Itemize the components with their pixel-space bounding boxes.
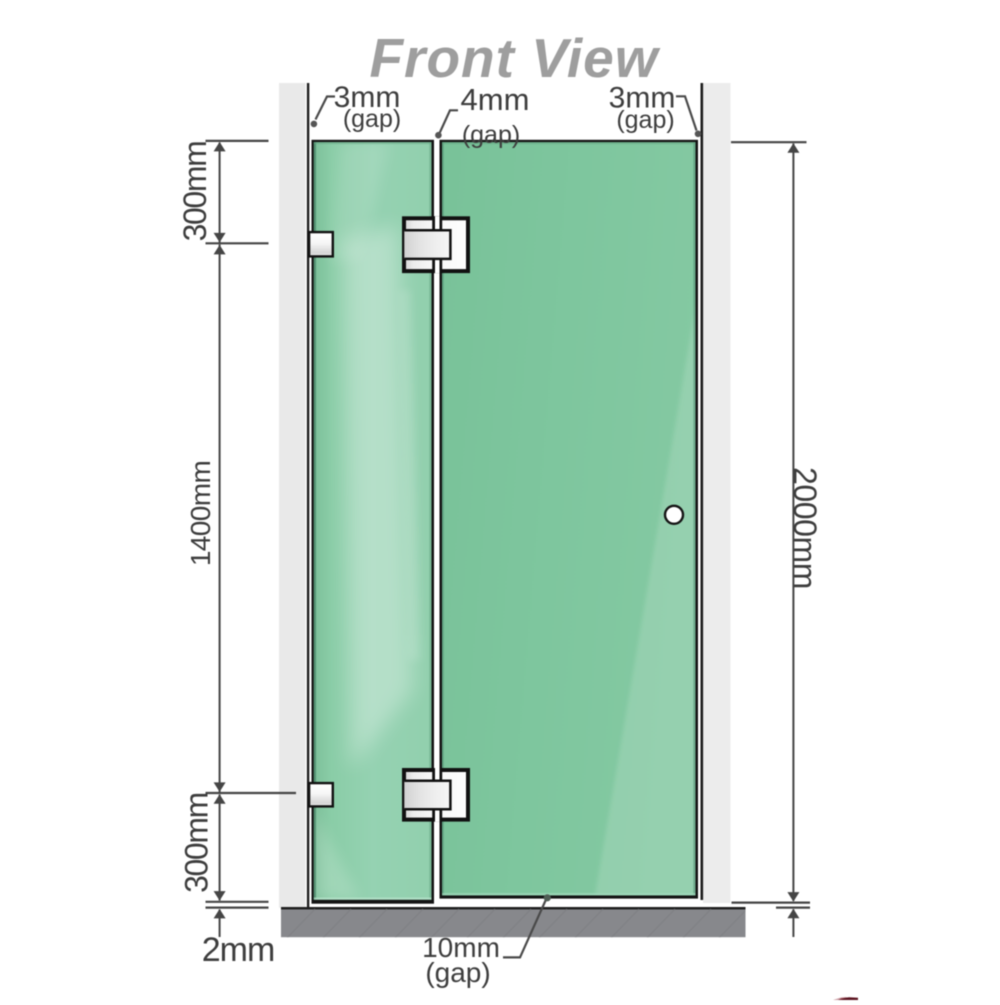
svg-text:2mm: 2mm xyxy=(202,931,275,969)
svg-text:(gap): (gap) xyxy=(462,121,520,149)
svg-text:300mm: 300mm xyxy=(178,793,214,893)
svg-text:(gap): (gap) xyxy=(343,105,401,133)
svg-text:300mm: 300mm xyxy=(177,142,213,242)
svg-text:Front View: Front View xyxy=(369,27,660,89)
svg-text:2000mm: 2000mm xyxy=(787,467,823,589)
svg-text:4mm: 4mm xyxy=(461,82,530,117)
svg-text:(gap): (gap) xyxy=(425,957,490,988)
svg-text:1400mm: 1400mm xyxy=(185,461,216,566)
svg-text:(gap): (gap) xyxy=(616,106,674,134)
